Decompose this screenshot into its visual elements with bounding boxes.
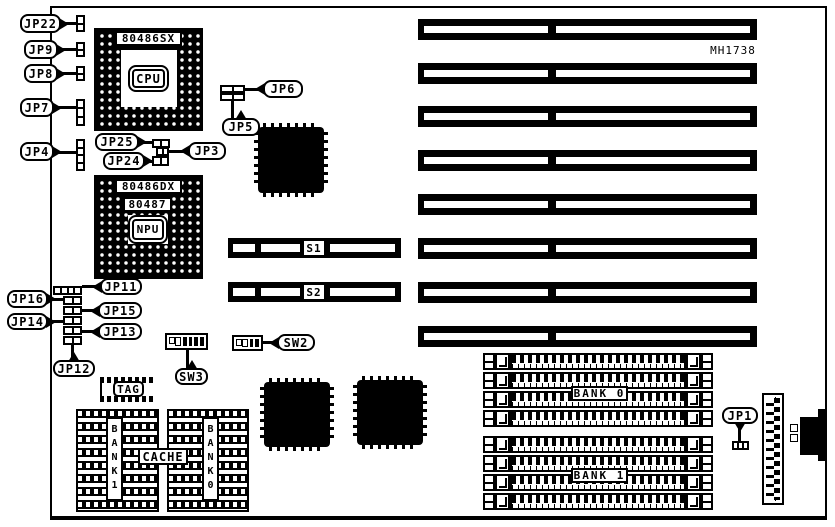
slot-key-right [556,201,750,208]
jp6-callout: JP6 [263,80,303,98]
jumper-pin [74,338,81,343]
jumper-pin [65,298,72,303]
s2-segment [330,288,395,296]
simm-end [483,353,495,370]
npu-socket: 80486DX 80487 NPU [94,175,203,279]
slot-key-right [556,245,750,252]
jp3-jumper-block [156,147,169,156]
jp16-jumper-block [63,296,82,305]
simm-pin-strip [510,493,686,510]
jp4-jumper-block [76,139,85,171]
jumper-pin [78,44,83,49]
keyboard-connector-notch [790,434,798,442]
jumper-pin [78,51,83,56]
power-connector-contacts [774,398,780,500]
simm-latch [686,455,701,472]
simm-latch [686,353,701,370]
jumper-pin [78,141,83,147]
bank1-label: BANK 1 [571,468,628,483]
slot-key-right [556,26,750,33]
jumper-pin [74,328,81,333]
jumper-pin [74,308,81,313]
board-id-label: MH1738 [706,44,760,57]
simm-end [483,410,495,427]
jp15-callout: JP15 [98,302,142,319]
simm-end [483,493,495,510]
simm-latch [686,372,701,389]
motherboard-diagram: MH1738 S1 S2 80486SX CPU 80486DX 80487 N… [0,0,835,527]
cache-bank1-column-label: BANK1 [106,417,123,501]
jp7-callout: JP7 [20,98,54,117]
keyboard-connector [818,409,827,461]
power-connector [762,393,784,505]
dip-cell [242,339,248,347]
dip-cell [189,337,193,346]
jumper-pin [154,141,160,146]
qfp-chip-3 [357,380,423,445]
jumper-pin [65,338,72,343]
isa-slot-1 [418,19,757,40]
slot-key-left [424,113,548,120]
simm-socket [483,436,713,453]
cache-bank0-column-label: BANK0 [202,417,219,501]
slot-key-right [556,157,750,164]
isa-slot-3 [418,106,757,127]
simm-pin-strip [510,436,686,453]
jumper-pin [74,298,81,303]
qfp-chip-1 [258,127,324,193]
simm-end [701,474,713,491]
cpu-label: CPU [132,69,165,88]
tag-label: TAG [113,381,144,397]
simm-pin-strip [510,353,686,370]
jumper-pin [162,141,168,146]
slot-key-right [556,333,750,340]
dip-cell [183,337,187,346]
slot-key-left [424,245,548,252]
simm-latch [686,474,701,491]
simm-latch [686,410,701,427]
switch-bar-s1: S1 [228,238,401,258]
jp9-jumper-block [76,42,85,57]
jumper-pin [69,288,74,293]
switch-bar-s2: S2 [228,282,401,302]
jp22-jumper-block [76,15,85,32]
jumper-pin [78,156,83,162]
jp13-jumper-block [63,326,82,335]
sw2-callout: SW2 [277,334,315,351]
simm-end [701,353,713,370]
isa-slot-5 [418,194,757,215]
jp11-callout: JP11 [100,278,142,295]
jumper-pin [65,328,72,333]
isa-slot-7 [418,282,757,303]
cpu-socket: 80486SX CPU [94,28,203,131]
npu-label: NPU [132,219,164,240]
s1-segment [261,244,300,252]
sw3-dip-switch [165,333,208,350]
simm-socket [483,493,713,510]
jp14-jumper-block [63,316,82,325]
s1-segment [233,244,255,252]
jumper-pin [78,109,83,115]
simm-latch [686,436,701,453]
dip-cell [250,339,254,347]
simm-latch [495,353,510,370]
jumper-pin [78,68,83,73]
jp6-jumper-block-row1 [220,85,245,93]
s1-label: S1 [302,239,326,257]
slot-key-left [424,289,548,296]
jp3-callout: JP3 [188,142,226,160]
s2-segment [233,288,255,296]
jp9-callout: JP9 [24,40,58,59]
jumper-pin [74,318,81,323]
jumper-pin [65,308,72,313]
jp1-jumper-block [732,441,749,450]
npu-socket-title: 80486DX [115,179,182,194]
jp6-jumper-block-row2 [220,93,245,101]
cpu-socket-title: 80486SX [115,31,182,46]
simm-end [483,455,495,472]
bank0-label: BANK 0 [571,386,628,401]
npu-socket-subtitle: 80487 [123,197,172,212]
simm-latch [495,474,510,491]
jp24-callout: JP24 [103,152,145,170]
jp14-callout: JP14 [7,313,48,330]
jumper-pin [62,288,67,293]
jumper-pin [78,25,83,31]
jumper-pin [158,149,162,154]
jumper-pin [744,443,747,448]
simm-end [483,391,495,408]
cache-label: CACHE [138,448,188,465]
simm-latch [495,493,510,510]
jumper-pin [78,75,83,80]
simm-end [701,493,713,510]
simm-pin-strip [510,410,686,427]
jumper-pin [78,101,83,107]
dip-cell [255,339,259,347]
s1-segment [330,244,395,252]
keyboard-connector-notch [790,424,798,432]
slot-key-left [424,70,548,77]
simm-end [701,436,713,453]
simm-latch [495,391,510,408]
jp22-callout: JP22 [20,14,61,33]
jumper-pin [234,87,244,91]
qfp-chip-2 [264,382,330,447]
jumper-pin [78,164,83,170]
jumper-pin [78,118,83,124]
s2-segment [261,288,300,296]
isa-slot-6 [418,238,757,259]
jp8-callout: JP8 [24,64,58,83]
simm-end [483,436,495,453]
jp16-callout: JP16 [7,290,48,308]
jp13-callout: JP13 [98,323,142,340]
jumper-pin [222,95,232,99]
jp11-jumper-block [53,286,82,295]
jumper-pin [78,149,83,155]
slot-key-left [424,201,548,208]
jp24-jumper-block [152,156,169,166]
sw3-callout: SW3 [175,368,208,385]
simm-socket [483,410,713,427]
simm-end [701,455,713,472]
jumper-pin [162,158,168,164]
slot-key-right [556,70,750,77]
dip-cell [194,337,198,346]
jp12-callout: JP12 [53,360,95,377]
isa-slot-4 [418,150,757,171]
jumper-pin [78,17,83,23]
simm-latch [495,455,510,472]
jumper-pin [164,149,168,154]
slot-key-right [556,289,750,296]
simm-latch [686,493,701,510]
jp5-callout: JP5 [222,118,260,136]
jp4-callout: JP4 [20,142,54,161]
simm-socket [483,353,713,370]
jp15-jumper-block [63,306,82,315]
slot-key-left [424,333,548,340]
simm-end [483,372,495,389]
jp7-jumper-block [76,99,85,126]
jumper-pin [222,87,232,91]
slot-key-left [424,26,548,33]
simm-latch [495,372,510,389]
simm-latch [495,436,510,453]
simm-end [483,474,495,491]
callout-lead-line [231,100,234,118]
jumper-pin [234,95,244,99]
isa-slot-2 [418,63,757,84]
sw2-dip-switch [232,335,263,351]
jumper-pin [739,443,742,448]
slot-key-right [556,113,750,120]
isa-slot-8 [418,326,757,347]
jp25-callout: JP25 [95,133,139,151]
simm-end [701,410,713,427]
jp8-jumper-block [76,66,85,81]
jp1-callout: JP1 [722,407,758,424]
jumper-pin [65,318,72,323]
dip-cell [200,337,204,346]
jumper-pin [734,443,737,448]
slot-key-left [424,157,548,164]
simm-end [701,372,713,389]
simm-latch [495,410,510,427]
jumper-pin [154,158,160,164]
simm-end [701,391,713,408]
jp12-jumper-block [63,336,82,345]
dip-cell [175,337,181,346]
jumper-pin [75,288,80,293]
simm-latch [686,391,701,408]
s2-label: S2 [302,283,326,301]
